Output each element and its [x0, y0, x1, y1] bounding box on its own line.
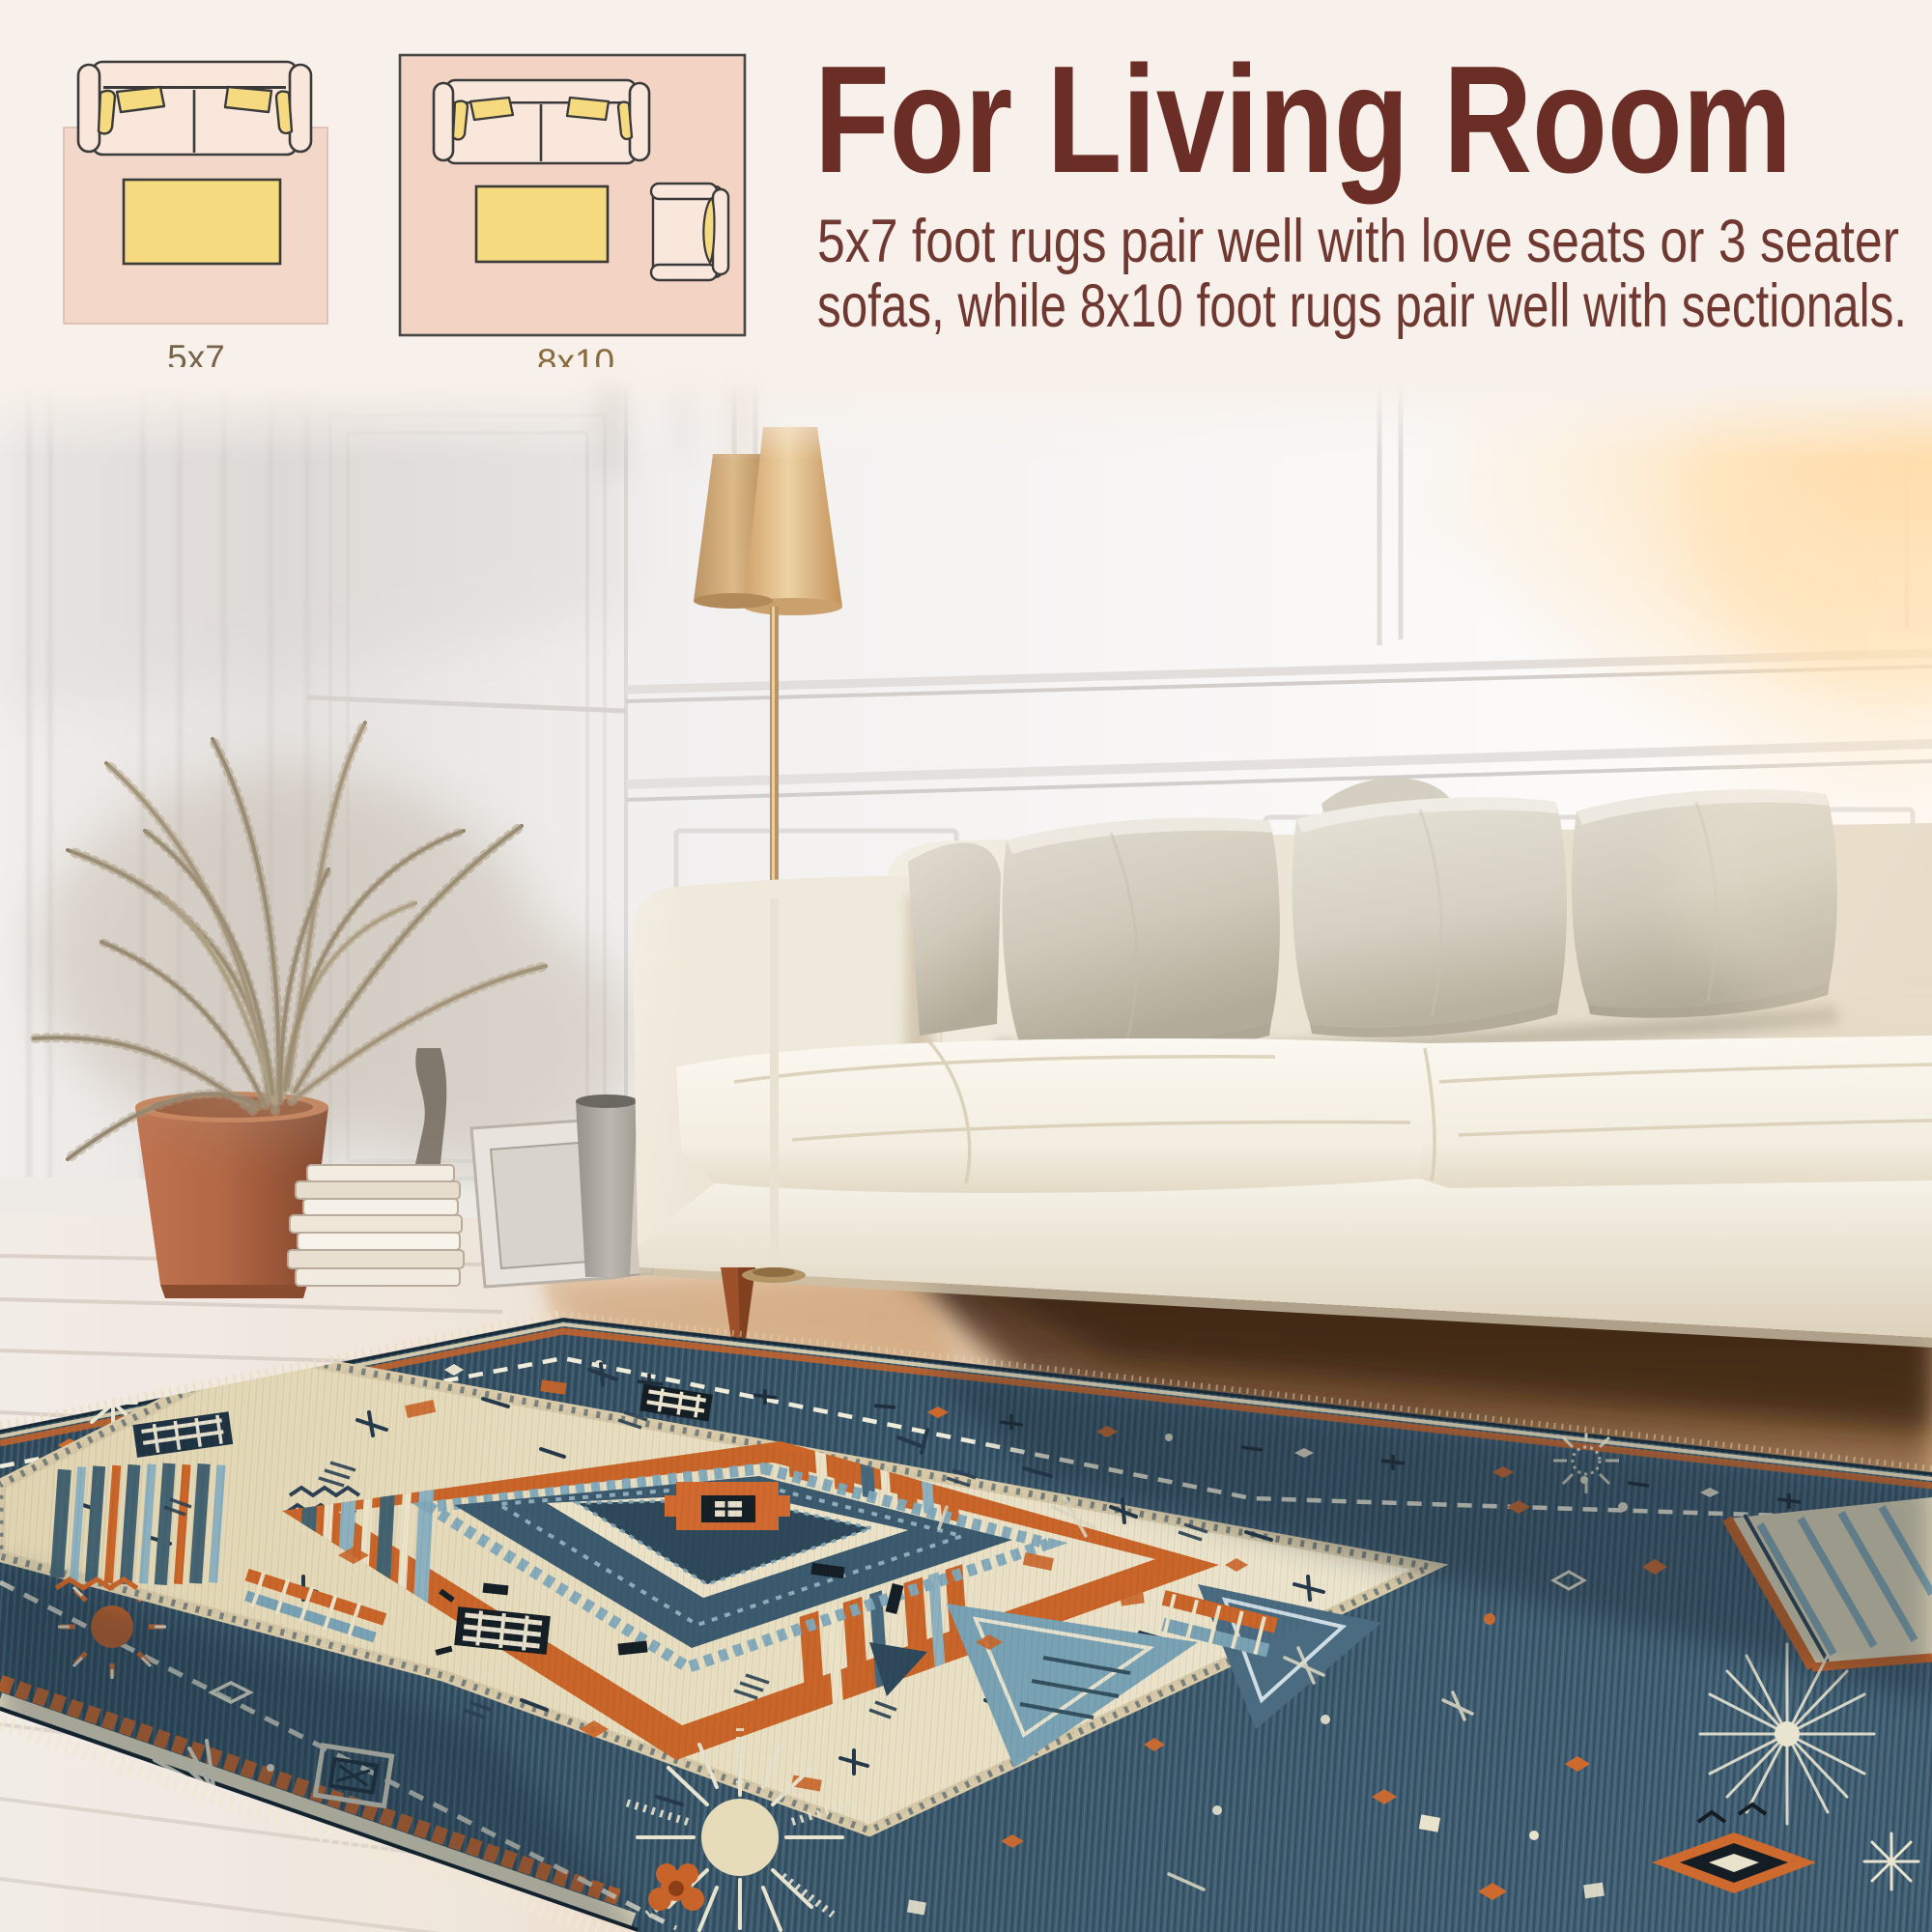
svg-text:sofas, while 8x10 foot rugs pa: sofas, while 8x10 foot rugs pair well wi…: [817, 272, 1907, 340]
svg-text:For Living Room: For Living Room: [814, 35, 1792, 205]
svg-text:5x7 foot rugs pair well with l: 5x7 foot rugs pair well with love seats …: [817, 208, 1899, 275]
